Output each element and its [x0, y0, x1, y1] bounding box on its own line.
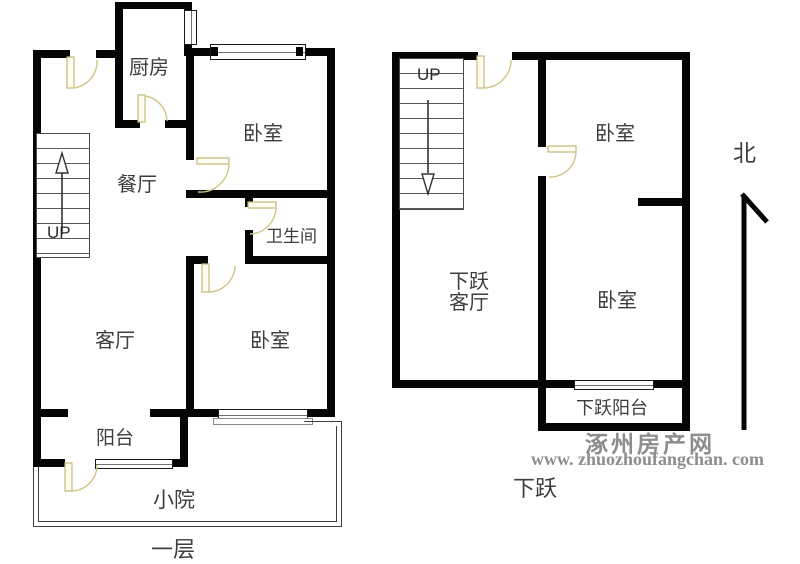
lower-bedroom-door-swing — [548, 146, 576, 177]
room-label-lower-living-line2: 客厅 — [449, 293, 489, 314]
watermark-site-url: www. zhuozhoufangchan. com — [515, 449, 780, 470]
room-label-living: 客厅 — [95, 331, 135, 352]
plan-title-lower-floor: 下跃 — [513, 477, 557, 500]
room-label-lower-living: 下跃 客厅 — [449, 272, 489, 314]
floorplan-canvas: 厨房 卧室 餐厅 UP 卫生间 客厅 卧室 阳台 小院 一层 UP 卧室 下跃 … — [0, 0, 800, 564]
lower-entry-door-swing — [477, 56, 511, 88]
room-label-bedroom-top: 卧室 — [243, 124, 283, 145]
stairs-label-up-first: UP — [47, 224, 71, 242]
room-label-bedroom-bottom: 卧室 — [250, 331, 290, 352]
room-label-bathroom: 卫生间 — [266, 228, 317, 246]
bedroom-top-door-swing — [197, 158, 229, 192]
bedroom-bottom-door-swing — [202, 264, 235, 292]
room-label-lower-bedroom-bottom: 卧室 — [597, 291, 637, 312]
balcony-door-swing — [65, 463, 97, 491]
room-label-lower-bedroom-top: 卧室 — [595, 124, 635, 145]
room-label-balcony: 阳台 — [96, 429, 134, 449]
north-arrow — [742, 194, 767, 430]
room-label-yard: 小院 — [153, 489, 195, 511]
room-label-lower-balcony: 下跃阳台 — [576, 399, 648, 418]
room-label-kitchen: 厨房 — [129, 58, 169, 79]
kitchen-door-swing — [138, 95, 167, 122]
entry-door-swing — [67, 57, 97, 88]
stairs-down-arrow — [422, 100, 434, 194]
room-label-lower-living-line1: 下跃 — [449, 272, 489, 293]
stairs-up-arrow — [56, 153, 68, 234]
north-label: 北 — [733, 142, 756, 166]
room-label-dining: 餐厅 — [117, 175, 157, 196]
plan-symbols-layer — [0, 0, 800, 564]
plan-title-first-floor: 一层 — [151, 538, 195, 561]
stairs-label-up-lower: UP — [417, 66, 441, 84]
